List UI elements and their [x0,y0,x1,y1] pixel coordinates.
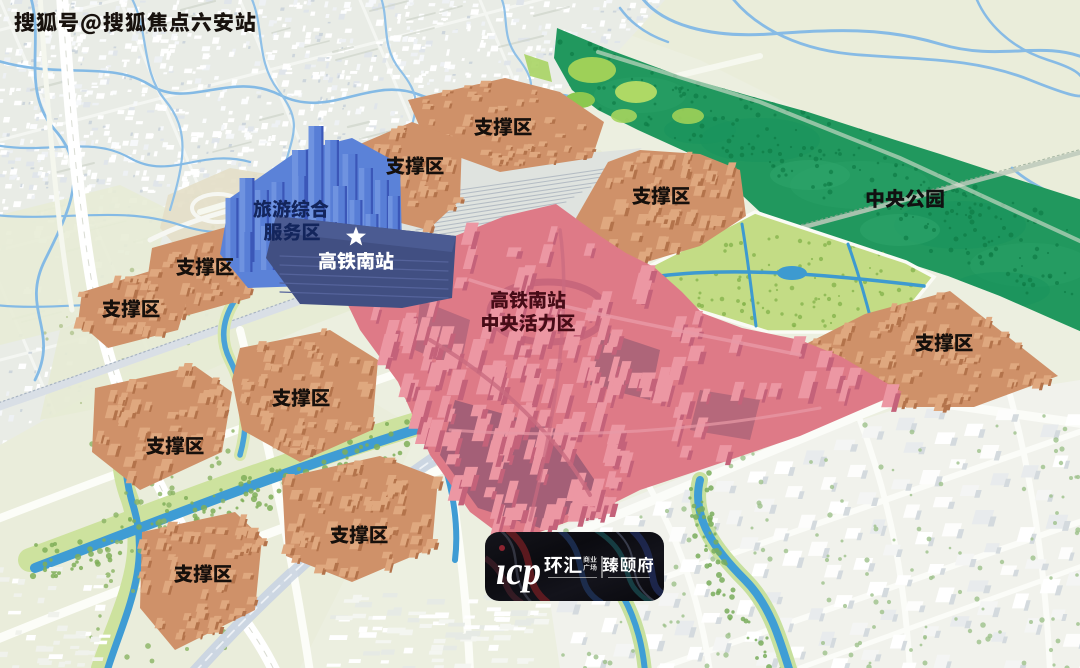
svg-text:ıcp: ıcp [496,548,541,593]
